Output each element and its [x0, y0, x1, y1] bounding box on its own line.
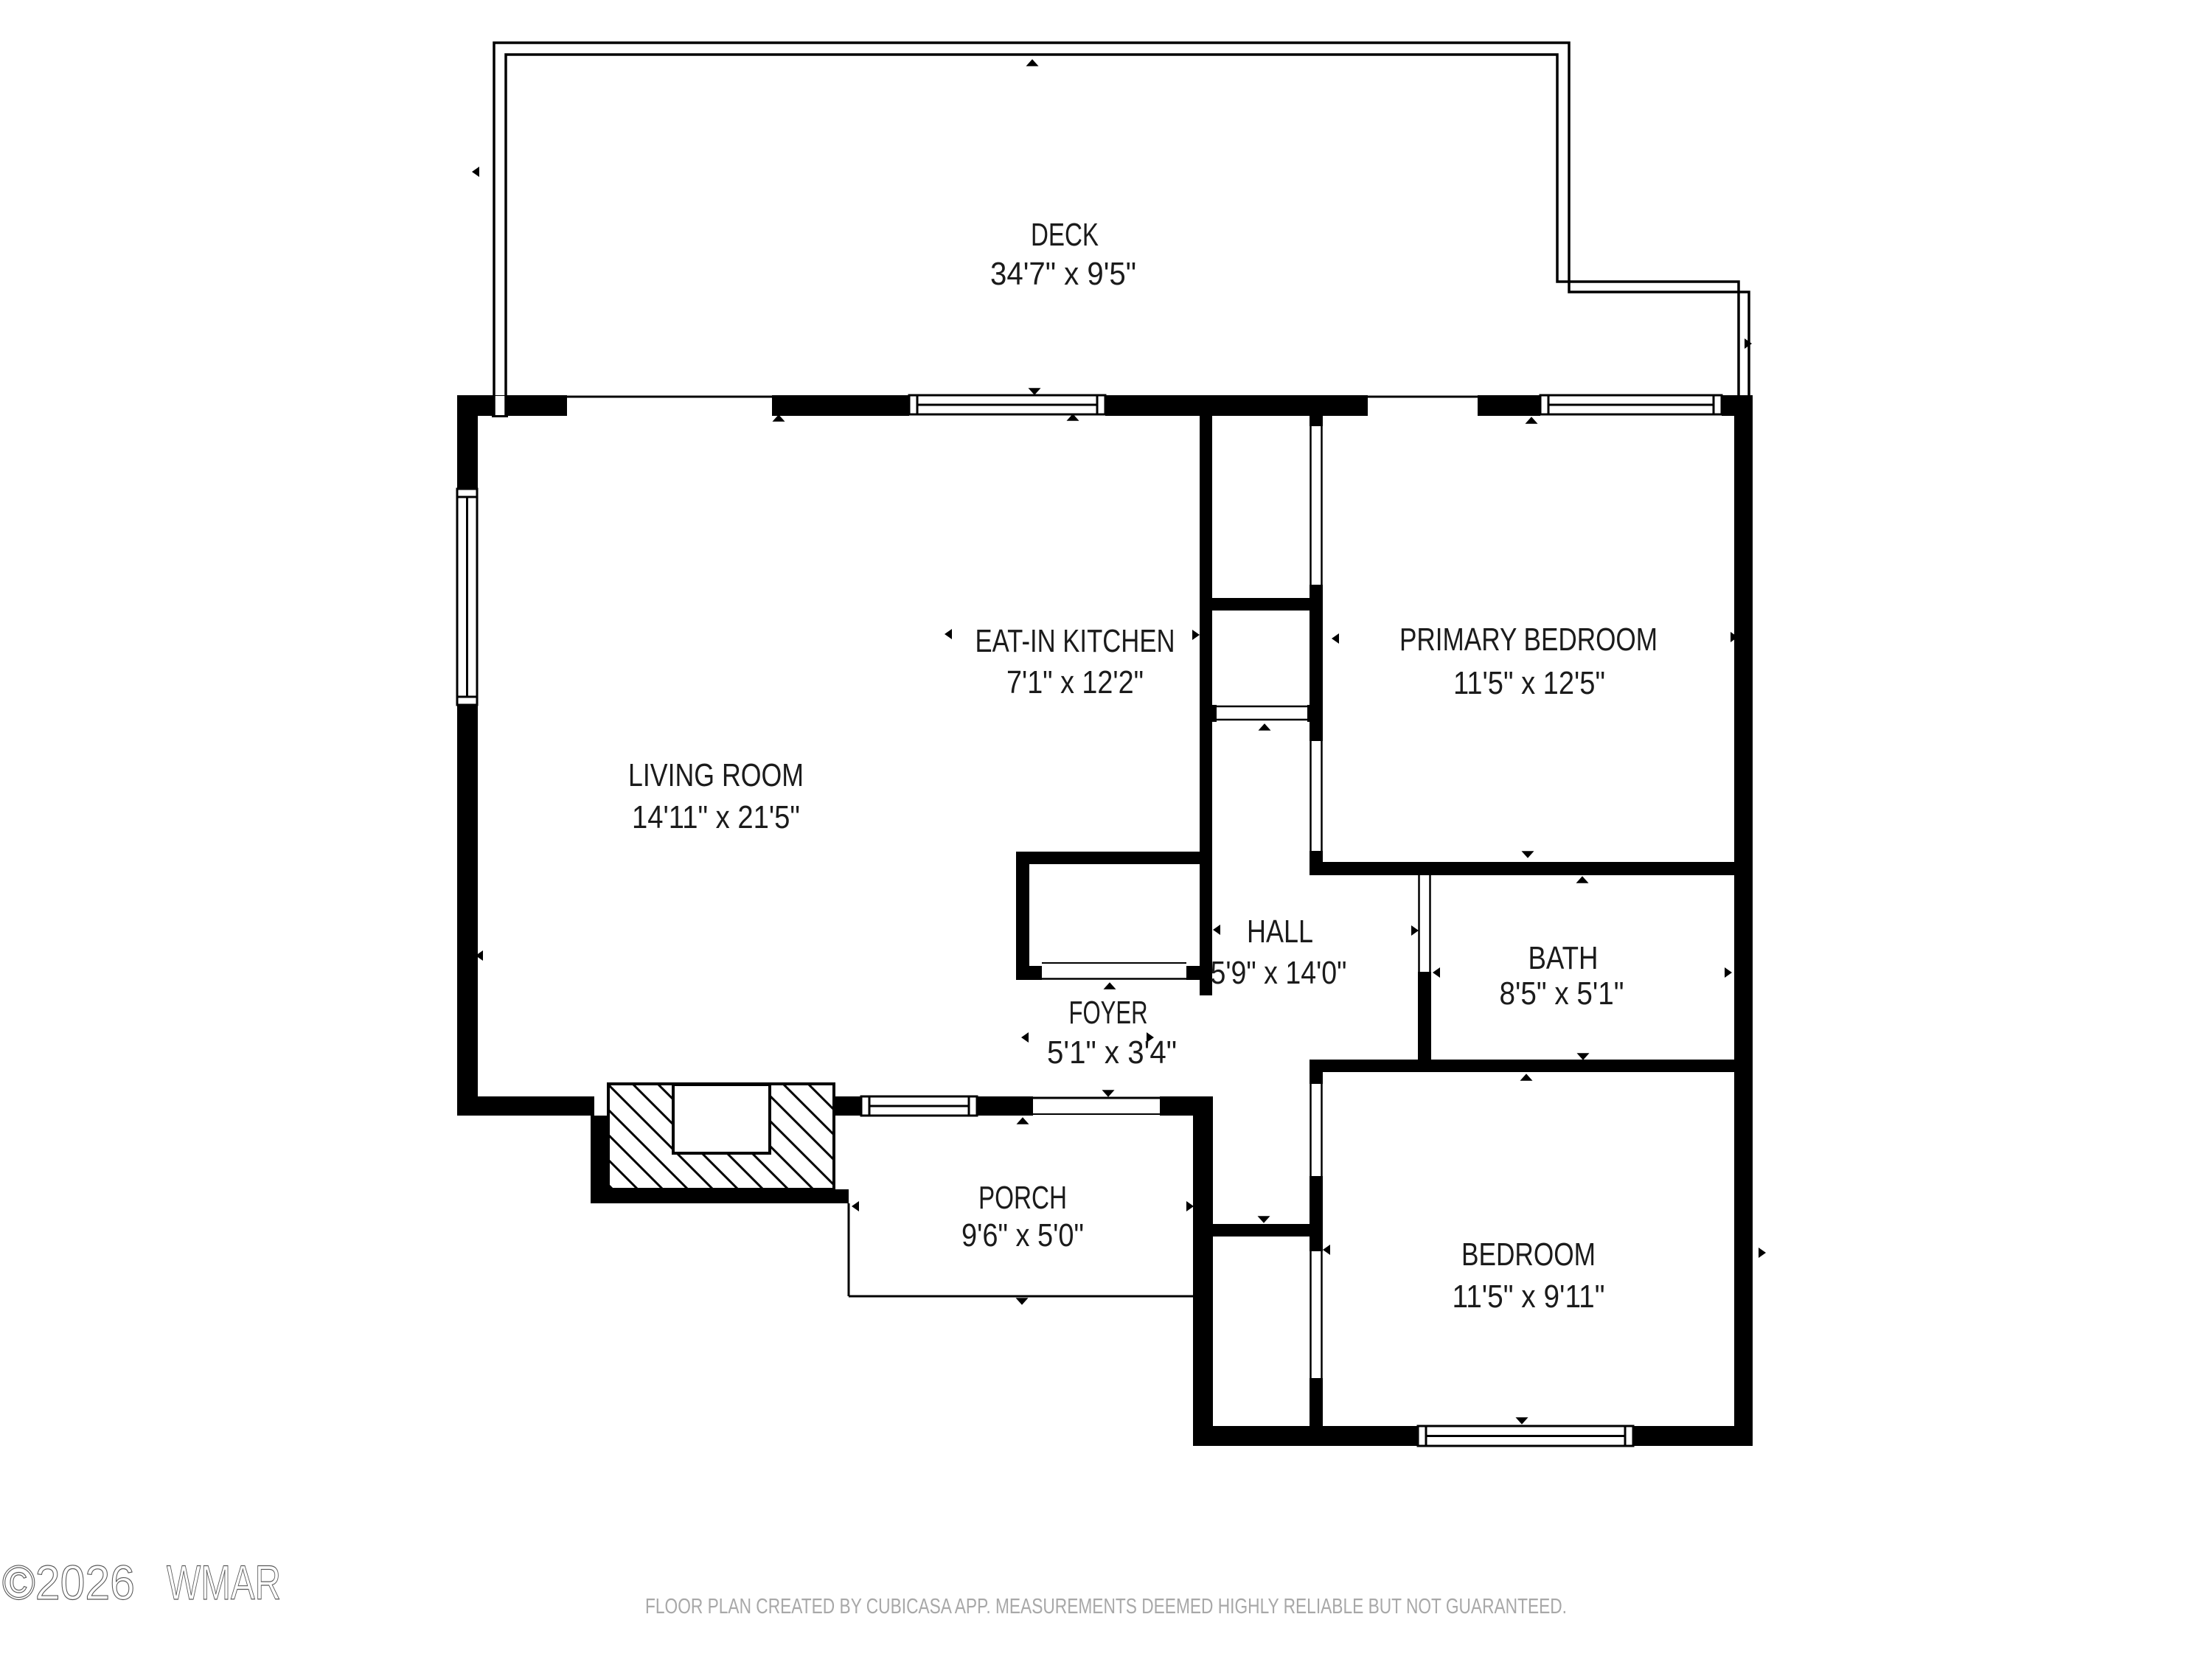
- svg-text:5'1" x 3'4": 5'1" x 3'4": [1047, 1034, 1177, 1071]
- svg-text:©2026: ©2026: [2, 1555, 135, 1610]
- svg-text:EAT-IN KITCHEN: EAT-IN KITCHEN: [975, 623, 1175, 659]
- svg-text:BEDROOM: BEDROOM: [1461, 1237, 1596, 1273]
- svg-text:DECK: DECK: [1031, 217, 1099, 253]
- svg-text:WMAR: WMAR: [167, 1555, 281, 1610]
- svg-text:8'5" x 5'1": 8'5" x 5'1": [1500, 975, 1624, 1012]
- svg-text:5'9" x 14'0": 5'9" x 14'0": [1211, 955, 1347, 991]
- svg-text:9'6" x 5'0": 9'6" x 5'0": [961, 1217, 1084, 1253]
- svg-text:FOYER: FOYER: [1069, 995, 1148, 1031]
- svg-text:14'11" x 21'5": 14'11" x 21'5": [632, 799, 800, 835]
- svg-text:34'7" x 9'5": 34'7" x 9'5": [990, 256, 1136, 292]
- svg-text:PORCH: PORCH: [978, 1180, 1067, 1216]
- svg-text:LIVING ROOM: LIVING ROOM: [628, 757, 804, 793]
- svg-text:7'1" x 12'2": 7'1" x 12'2": [1006, 664, 1144, 700]
- svg-text:HALL: HALL: [1247, 914, 1313, 950]
- svg-text:FLOOR PLAN CREATED BY CUBICASA: FLOOR PLAN CREATED BY CUBICASA APP. MEAS…: [645, 1595, 1567, 1618]
- svg-text:PRIMARY BEDROOM: PRIMARY BEDROOM: [1399, 622, 1658, 658]
- svg-text:11'5" x 12'5": 11'5" x 12'5": [1453, 665, 1605, 701]
- svg-text:BATH: BATH: [1528, 940, 1599, 976]
- svg-text:11'5" x 9'11": 11'5" x 9'11": [1453, 1279, 1605, 1315]
